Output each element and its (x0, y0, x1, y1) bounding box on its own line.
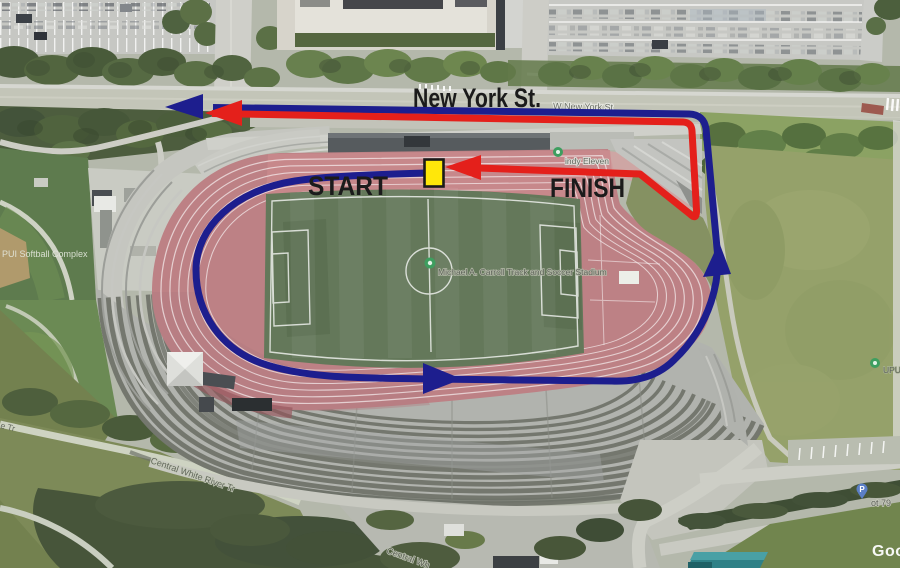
svg-text:Michael A. Carroll Track and S: Michael A. Carroll Track and Soccer Stad… (438, 267, 607, 277)
svg-text:ot 79: ot 79 (871, 498, 891, 508)
svg-text:START: START (308, 171, 388, 201)
svg-text:PUI Softball Complex: PUI Softball Complex (2, 249, 88, 259)
svg-text:indy Eleven: indy Eleven (565, 156, 609, 166)
svg-text:UPUI: UPUI (883, 365, 900, 375)
svg-text:Google: Google (872, 543, 900, 560)
svg-text:New York St.: New York St. (413, 83, 541, 113)
svg-text:FINISH: FINISH (550, 173, 625, 203)
svg-text:P: P (859, 485, 865, 494)
